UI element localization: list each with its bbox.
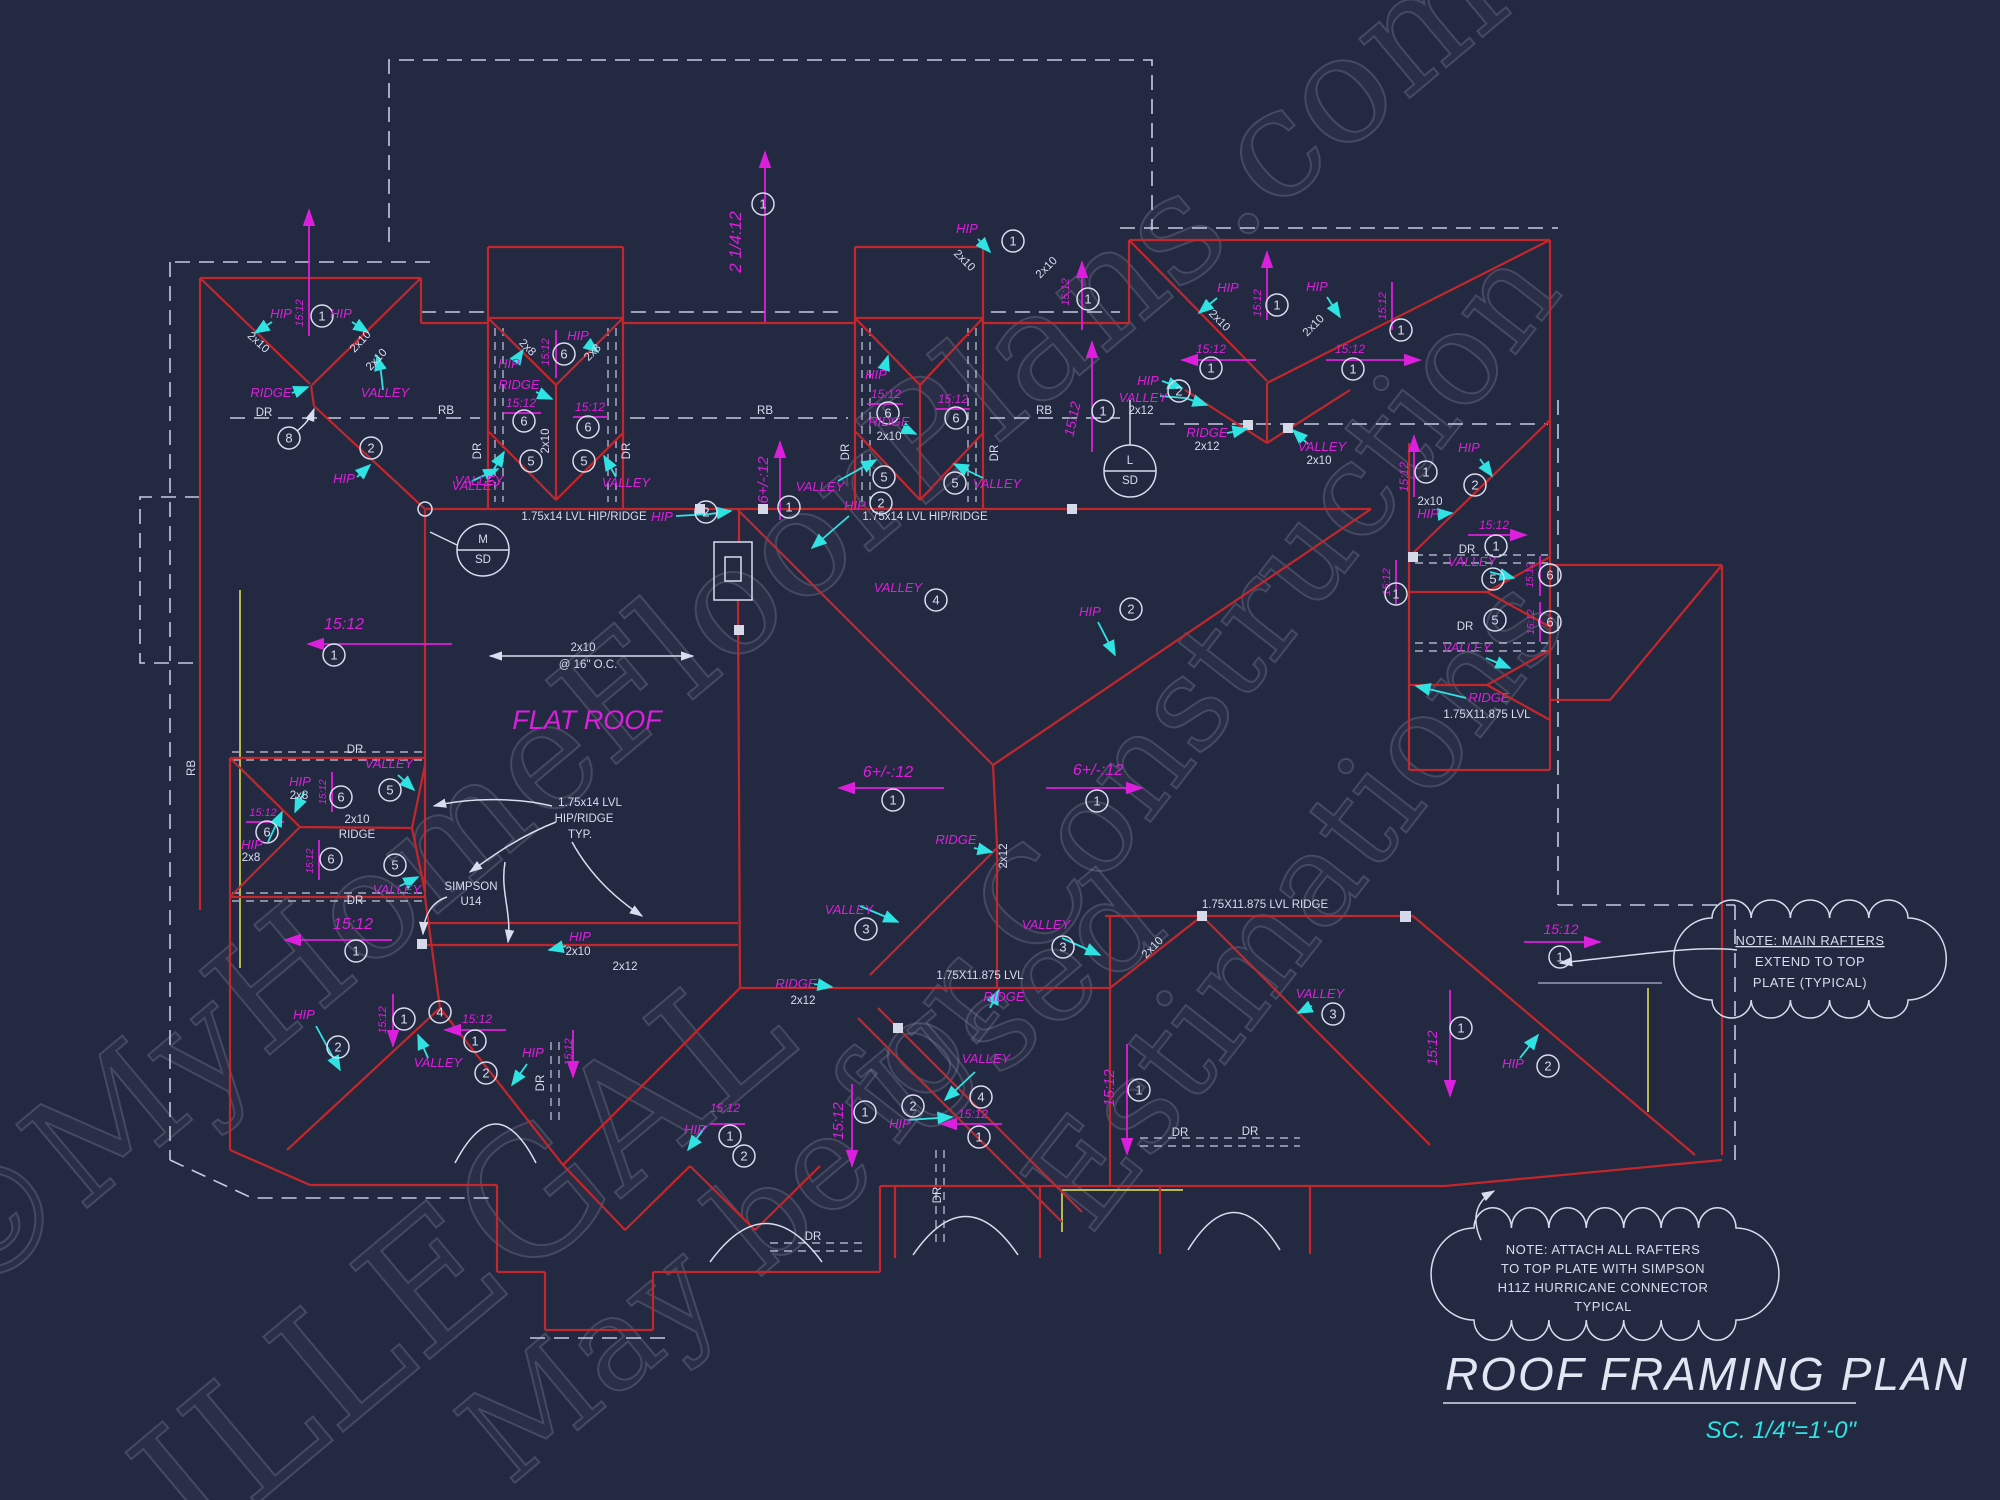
annotation: VALLEY <box>361 385 411 400</box>
annotation: HIP <box>844 498 866 513</box>
circled-ref: 5 <box>520 450 542 472</box>
cloud-leader <box>1560 949 1737 963</box>
annotation: VALLEY <box>373 882 423 897</box>
note2-line4: TYPICAL <box>1574 1299 1632 1314</box>
drawing-scale: SC. 1/4"=1'-0" <box>1706 1417 1858 1444</box>
svg-text:1: 1 <box>759 197 766 212</box>
annotation: 15:12 <box>1479 518 1509 532</box>
revision-clouds: NOTE: MAIN RAFTERS EXTEND TO TOP PLATE (… <box>1431 900 1946 1340</box>
circled-ref: 4 <box>925 589 947 611</box>
annotation: 15:12 <box>506 396 536 410</box>
annotation: DR <box>805 1231 822 1243</box>
circled-ref: 1 <box>752 193 774 215</box>
annotation: HIP <box>241 837 263 852</box>
circled-ref: 2 <box>1120 598 1142 620</box>
annotation: 15:12 <box>462 1012 492 1026</box>
annotation: 15:12 <box>1543 921 1578 937</box>
annotation: 15:12 <box>938 392 968 406</box>
annotation: HIP <box>293 1007 315 1022</box>
annotation: DR <box>347 744 364 756</box>
annotation: HIP <box>1458 440 1480 455</box>
svg-text:2: 2 <box>482 1066 489 1081</box>
annotation: VALLEY <box>1119 390 1169 405</box>
annotation: SD <box>1122 475 1138 487</box>
svg-text:2: 2 <box>877 496 884 511</box>
svg-text:5: 5 <box>391 858 398 873</box>
annotation: HIP <box>498 356 520 371</box>
svg-text:1: 1 <box>400 1012 407 1027</box>
svg-text:1: 1 <box>1349 362 1356 377</box>
note1-line1: NOTE: MAIN RAFTERS <box>1735 933 1884 948</box>
svg-text:1: 1 <box>1084 292 1091 307</box>
annotation: DR <box>1172 1127 1189 1139</box>
svg-text:5: 5 <box>1489 572 1496 587</box>
annotation: VALLEY <box>1022 917 1072 932</box>
annotation: VALLEY <box>1296 986 1346 1001</box>
annotation: 15:12 <box>958 1107 988 1121</box>
annotation: VALLEY <box>1443 640 1493 655</box>
annotation: 2x10 <box>345 814 370 826</box>
svg-text:4: 4 <box>436 1005 443 1020</box>
circled-ref: 1 <box>464 1030 486 1052</box>
annotation: 2x12 <box>1195 441 1220 453</box>
annotation: 2x8 <box>582 342 604 364</box>
annotation: VALLEY <box>796 479 846 494</box>
svg-text:6: 6 <box>560 347 567 362</box>
svg-text:5: 5 <box>527 454 534 469</box>
annotation: 15:12 <box>1381 568 1393 596</box>
annotation: 15:12 <box>1397 462 1411 492</box>
svg-text:6: 6 <box>337 790 344 805</box>
annotation: 15:12 <box>305 848 316 873</box>
annotation: RB <box>438 405 454 417</box>
annotation: 15:12 <box>1424 1030 1440 1065</box>
svg-text:1: 1 <box>1392 587 1399 602</box>
svg-text:3: 3 <box>1329 1007 1336 1022</box>
roof-framing-plan-sheet: ©MyHomeFloorPlans.com ILLEGAL May be Use… <box>0 0 2000 1500</box>
circled-ref: 1 <box>1266 294 1288 316</box>
annotation: 2x8 <box>242 852 261 864</box>
svg-text:1: 1 <box>1099 404 1106 419</box>
annotation: FLAT ROOF <box>512 705 663 735</box>
annotation: VALLEY <box>365 756 415 771</box>
annotation: 15:12 <box>1060 278 1072 306</box>
circled-ref: 1 <box>323 644 345 666</box>
annotation: VALLEY <box>602 475 652 490</box>
svg-text:5: 5 <box>951 476 958 491</box>
annotation: VALLEY <box>455 473 505 488</box>
annotation: HIP <box>270 306 292 321</box>
annotation: HIP <box>865 367 887 382</box>
annotation: 2x10 <box>364 347 390 373</box>
annotation: RIDGE <box>250 385 292 400</box>
annotation: 2x12 <box>998 844 1010 869</box>
svg-text:2: 2 <box>334 1040 341 1055</box>
annotation: VALLEY <box>825 902 875 917</box>
annotation: HIP <box>1217 280 1239 295</box>
svg-text:2: 2 <box>702 505 709 520</box>
circled-ref: 6 <box>513 410 535 432</box>
svg-text:1: 1 <box>318 309 325 324</box>
annotation: 2x10 <box>877 431 902 443</box>
annotation: HIP <box>1417 506 1439 521</box>
svg-text:4: 4 <box>977 1090 984 1105</box>
svg-text:1: 1 <box>1135 1083 1142 1098</box>
annotation: 2x10 <box>540 429 552 454</box>
circled-ref: 3 <box>855 918 877 940</box>
svg-text:6: 6 <box>1546 615 1553 630</box>
annotation: HIP <box>1502 1056 1524 1071</box>
svg-text:2: 2 <box>1127 602 1134 617</box>
annotation: 2x10 <box>1307 455 1332 467</box>
svg-text:6: 6 <box>584 420 591 435</box>
annotation: VALLEY <box>414 1055 464 1070</box>
annotation: 2x12 <box>613 961 638 973</box>
annotation: HIP <box>684 1122 706 1137</box>
annotation: 15:12 <box>333 916 373 933</box>
svg-text:5: 5 <box>1491 613 1498 628</box>
svg-text:2: 2 <box>367 441 374 456</box>
svg-text:2: 2 <box>1471 478 1478 493</box>
annotation: 6+/-:12 <box>1073 762 1123 779</box>
note1-line3: PLATE (TYPICAL) <box>1753 975 1867 990</box>
svg-text:4: 4 <box>932 593 939 608</box>
annotation: 2x12 <box>1129 405 1154 417</box>
svg-text:3: 3 <box>862 922 869 937</box>
svg-text:5: 5 <box>880 470 887 485</box>
annotation: HIP <box>567 328 589 343</box>
annotation: 15:12 <box>294 299 306 327</box>
annotation: HIP <box>333 471 355 486</box>
annotation: DR <box>256 407 273 419</box>
annotation: DR <box>472 443 484 460</box>
svg-text:2: 2 <box>909 1099 916 1114</box>
circled-ref: 1 <box>1002 230 1024 252</box>
note2-line3: H11Z HURRICANE CONNECTOR <box>1498 1280 1709 1295</box>
annotation: HIP/RIDGE <box>555 813 614 825</box>
annotation: HIP <box>522 1045 544 1060</box>
annotation: VALLEY <box>973 476 1023 491</box>
svg-text:1: 1 <box>785 500 792 515</box>
annotation: 6+/-:12 <box>863 764 913 781</box>
svg-text:2: 2 <box>740 1149 747 1164</box>
drawing-title: ROOF FRAMING PLAN <box>1445 1348 1969 1400</box>
svg-text:6: 6 <box>1546 568 1553 583</box>
svg-text:1: 1 <box>1093 794 1100 809</box>
annotation: VALLEY <box>1298 439 1348 454</box>
annotation: 2x10 <box>951 248 977 274</box>
annotation: HIP <box>330 306 352 321</box>
annotation: RIDGE <box>935 832 977 847</box>
annotation: TYP. <box>568 829 592 841</box>
annotation: HIP <box>569 929 591 944</box>
annotation: RB <box>186 760 198 776</box>
circled-ref: 1 <box>393 1008 415 1030</box>
annotation: RIDGE <box>868 414 910 429</box>
annotation: DR <box>932 1187 944 1204</box>
circled-ref: 6 <box>577 416 599 438</box>
annotation: SD <box>475 554 491 566</box>
cad-canvas: ©MyHomeFloorPlans.com ILLEGAL May be Use… <box>0 0 2000 1500</box>
annotation: 15:12 <box>575 400 605 414</box>
annotation: U14 <box>460 896 482 908</box>
annotation: 2x10 <box>245 330 272 356</box>
circled-ref: 4 <box>429 1001 451 1023</box>
annotation: DR <box>535 1075 547 1092</box>
svg-text:2: 2 <box>1544 1059 1551 1074</box>
circled-ref: 1 <box>1450 1017 1472 1039</box>
title-block: ROOF FRAMING PLAN SC. 1/4"=1'-0" <box>1443 1348 1969 1444</box>
annotation: 15:12 <box>540 338 552 366</box>
annotation: 15:12 <box>1252 289 1264 317</box>
annotation: 2 1/4:12 <box>726 211 745 274</box>
svg-text:6: 6 <box>327 852 334 867</box>
circled-ref: 1 <box>1549 946 1571 968</box>
svg-text:1: 1 <box>471 1034 478 1049</box>
circled-ref: 1 <box>1200 357 1222 379</box>
annotation: VALLEY <box>962 1051 1012 1066</box>
svg-text:1: 1 <box>861 1105 868 1120</box>
annotation: 1.75X11.875 LVL RIDGE <box>1202 899 1329 911</box>
svg-text:6: 6 <box>520 414 527 429</box>
circled-ref: 2 <box>475 1062 497 1084</box>
annotation: 2x10 <box>571 642 596 654</box>
annotation: RIDGE <box>1468 690 1510 705</box>
annotation: 15:12 <box>710 1101 740 1115</box>
circled-ref: 8 <box>278 427 300 449</box>
circled-ref: 3 <box>1322 1003 1344 1025</box>
annotation: 1.75X11.875 LVL <box>1443 709 1531 721</box>
svg-text:1: 1 <box>1009 234 1016 249</box>
svg-text:1: 1 <box>1457 1021 1464 1036</box>
annotation: RIDGE <box>339 829 376 841</box>
annotation: DR <box>347 895 364 907</box>
annotation: SIMPSON <box>444 881 497 893</box>
note2-line2: TO TOP PLATE WITH SIMPSON <box>1501 1261 1705 1276</box>
annotation: L <box>1127 455 1134 467</box>
annotation: 15:12 <box>1335 342 1365 356</box>
svg-text:3: 3 <box>1059 940 1066 955</box>
annotation: 1.75x14 LVL <box>558 797 622 809</box>
annotation: HIP <box>889 1116 911 1131</box>
annotation: 15:12 <box>871 387 901 401</box>
svg-text:5: 5 <box>580 454 587 469</box>
circled-ref: 5 <box>573 450 595 472</box>
annotation: 15:12 <box>1196 342 1226 356</box>
svg-text:1: 1 <box>1207 361 1214 376</box>
typ-leader <box>572 842 642 916</box>
svg-text:5: 5 <box>386 783 393 798</box>
annotation: DR <box>1457 621 1474 633</box>
annotation: VALLEY <box>874 580 924 595</box>
svg-text:1: 1 <box>330 648 337 663</box>
svg-text:1: 1 <box>726 1129 733 1144</box>
annotation: DR <box>840 444 852 461</box>
annotation: 15:12 <box>1377 292 1389 320</box>
annotation: M <box>478 534 488 546</box>
annotation: DR <box>989 445 1001 462</box>
annotation: 6+/-:12 <box>755 456 772 504</box>
annotation: RIDGE <box>983 989 1025 1004</box>
annotation: 2x8 <box>290 790 309 802</box>
circled-ref: 6 <box>330 786 352 808</box>
circled-ref: 2 <box>1537 1055 1559 1077</box>
annotation: @ 16" O.C. <box>559 659 618 671</box>
annotation: 15:12 <box>1525 562 1536 587</box>
svg-text:1: 1 <box>1492 539 1499 554</box>
svg-text:1: 1 <box>889 793 896 808</box>
annotation: HIP <box>956 221 978 236</box>
annotation: HIP <box>1306 279 1328 294</box>
svg-text:1: 1 <box>1397 323 1404 338</box>
annotation: HIP <box>289 774 311 789</box>
annotation: VALLEY <box>1448 554 1498 569</box>
annotation: 2x10 <box>1206 308 1232 334</box>
annotation: 15:12 <box>830 1102 847 1140</box>
ref-8-leader <box>297 409 314 431</box>
annotation: 15:12 <box>249 807 277 819</box>
annotation: 15:12 <box>318 779 329 804</box>
annotation: DR <box>1242 1126 1259 1138</box>
svg-text:6: 6 <box>952 411 959 426</box>
note1-line2: EXTEND TO TOP <box>1755 954 1865 969</box>
annotation: 2x10 <box>348 329 374 355</box>
detail-bubble-m-sd <box>430 524 509 576</box>
annotation: RB <box>757 405 773 417</box>
annotation: RIDGE <box>498 377 540 392</box>
svg-text:8: 8 <box>285 431 292 446</box>
annotation: 15:12 <box>324 616 364 633</box>
svg-text:1: 1 <box>352 944 359 959</box>
note2-line1: NOTE: ATTACH ALL RAFTERS <box>1506 1242 1701 1257</box>
annotation: 15:12 <box>1101 1069 1118 1107</box>
annotation: 15:12 <box>377 1006 389 1034</box>
annotation: 2x12 <box>791 995 816 1007</box>
svg-text:6: 6 <box>263 825 270 840</box>
annotation: 15:12 <box>1526 609 1537 634</box>
annotation: 1.75x14 LVL HIP/RIDGE <box>862 511 988 523</box>
annotation: 2x10 <box>1301 313 1327 339</box>
annotation: HIP <box>1079 604 1101 619</box>
svg-text:1: 1 <box>975 1130 982 1145</box>
annotation: HIP <box>1137 373 1159 388</box>
detail-divider <box>430 532 509 550</box>
annotation: RB <box>1036 405 1052 417</box>
svg-text:1: 1 <box>1422 465 1429 480</box>
annotation: RIDGE <box>1186 425 1228 440</box>
annotation: 15:12 <box>563 1038 575 1066</box>
svg-text:1: 1 <box>1273 298 1280 313</box>
annotation: DR <box>621 443 633 460</box>
circled-ref: 2 <box>360 437 382 459</box>
annotation: 1.75x14 LVL HIP/RIDGE <box>521 511 647 523</box>
svg-text:2: 2 <box>1175 384 1182 399</box>
annotation: 1.75X11.875 LVL <box>936 970 1024 982</box>
annotation: HIP <box>651 509 673 524</box>
annotation: 2x10 <box>566 946 591 958</box>
circled-ref: 1 <box>882 789 904 811</box>
annotation: RIDGE <box>775 976 817 991</box>
circled-ref: 1 <box>1092 400 1114 422</box>
